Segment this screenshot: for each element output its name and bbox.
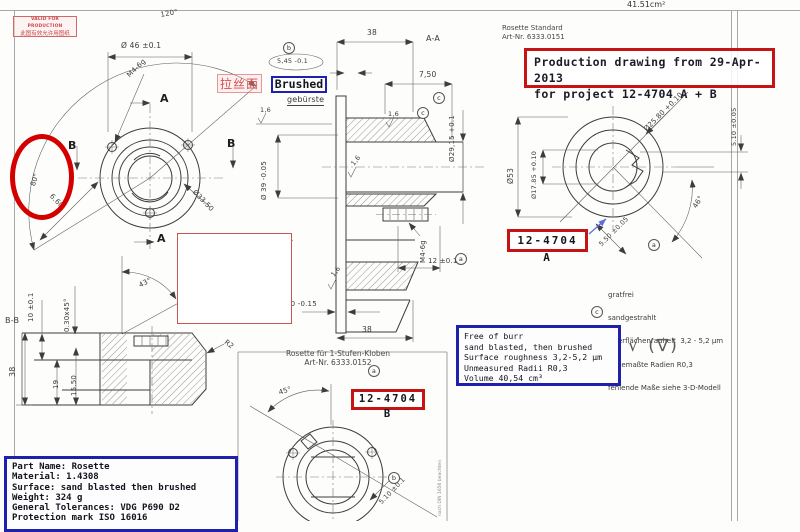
brushed-annotation-box: Brushed <box>271 76 327 93</box>
dimension-label: A-A <box>426 35 440 43</box>
sheet-area-label: 41.51cm² <box>627 0 665 9</box>
dimension-label: 38 <box>367 29 377 37</box>
title-b-artnr: Art-Nr. 6333.0152 <box>258 358 418 367</box>
part-info-line: Part Name: Rosette <box>12 462 230 472</box>
red-empty-rectangle <box>177 233 292 324</box>
part-info-line: Material: 1.4308 <box>12 472 230 482</box>
dimension-label: M4-6g <box>420 240 427 263</box>
surface-finish-icon: √ (∇) <box>628 336 679 356</box>
part-info-line: Protection mark ISO 16016 <box>12 513 230 523</box>
dimension-label: Ø29,15 +0.1 <box>449 115 456 162</box>
dimension-label: 120° <box>160 9 179 19</box>
dimension-label: 12 ±0.1 <box>428 258 458 265</box>
dimension-label: 5.50 ±0.05 <box>598 216 630 248</box>
brushed-label: Brushed <box>275 77 323 91</box>
part-info-line: Weight: 324 g <box>12 493 230 503</box>
english-note-line: Free of burr <box>464 331 613 342</box>
section-letter: B <box>227 138 236 149</box>
dimension-label: Ø53 <box>507 168 515 184</box>
english-note-line: Surface roughness 3,2-5,2 µm <box>464 352 613 363</box>
english-notes-box: Free of burr sand blasted, then brushed … <box>456 325 621 386</box>
dimension-label: 7,50 <box>419 71 437 79</box>
title-block-b: Rosette für 1-Stufen-Kloben Art-Nr. 6333… <box>258 349 418 367</box>
german-note-line: gratfrei <box>608 292 723 300</box>
dimension-label: 19 <box>53 380 60 389</box>
drawing-canvas: 120°Ø 46 ±0.1M4-6gAABB80°6.60Ø33.5043°B-… <box>0 0 800 521</box>
chinese-brushed-note: 拉丝面 <box>217 74 262 93</box>
dimension-label: 45° <box>278 386 293 397</box>
dimension-label: 5.10 ±0.05 <box>731 108 738 146</box>
production-note-line2: for project 12-4704 A + B <box>534 86 765 102</box>
dimension-label: 0.30x45° <box>64 298 71 332</box>
part-b-tag: 12-4704 B <box>351 389 425 410</box>
production-note-line1: Production drawing from 29-Apr-2013 <box>534 54 765 86</box>
section-letter: B <box>68 140 77 151</box>
dimension-label: Ø17.85 +0.10 <box>531 151 538 199</box>
english-note-line: sand blasted, then brushed <box>464 342 613 353</box>
dimension-label: R2 <box>223 339 235 350</box>
valid-for-production-stamp: VALID FOR PRODUCTION 此图有效允许用图纸 <box>13 16 77 37</box>
stamp-line2: 此图有效允许用图纸 <box>14 30 76 38</box>
stamp-line1: VALID FOR PRODUCTION <box>14 17 76 30</box>
part-info-line: General Tolerances: VDG P690 D2 <box>12 503 230 513</box>
dimension-label: 1,6 <box>388 111 399 118</box>
dimension-label: 1,6 <box>330 265 342 278</box>
datum-circle-label: a <box>648 239 660 251</box>
german-note-line: sandgestrahlt <box>608 315 723 323</box>
part-info-line: Surface: sand blasted then brushed <box>12 483 230 493</box>
section-letter: A <box>157 233 166 244</box>
datum-circle-label: b <box>388 472 400 484</box>
dimension-label: 15.50 <box>71 375 78 396</box>
dimension-label: Ø 46 ±0.1 <box>121 42 161 50</box>
english-note-line: Volume 40,54 cm³ <box>464 373 613 384</box>
title-b-name: Rosette für 1-Stufen-Kloben <box>258 349 418 358</box>
german-note-line: fehlende Maße siehe 3-D-Modell <box>608 385 723 393</box>
dimension-label: 38 <box>9 366 17 377</box>
dimension-label: gebürste <box>287 96 324 106</box>
section-letter: A <box>160 93 169 104</box>
dimension-label: 38 <box>362 326 372 334</box>
dimension-label: 1,6 <box>350 154 362 167</box>
datum-circle-label: c <box>417 107 429 119</box>
datum-circle-label: b <box>283 42 295 54</box>
title-a-artnr: Art-Nr. 6333.0151 <box>502 33 565 42</box>
dimension-label: Ø33.50 <box>191 189 215 213</box>
dimension-label: 10 ±0.1 <box>28 292 35 322</box>
english-note-line: Unmeasured Radii R0,3 <box>464 363 613 374</box>
red-highlight-ellipse <box>10 134 74 220</box>
dimension-label: B-B <box>5 317 19 325</box>
title-a-name: Rosette Standard <box>502 24 565 33</box>
production-drawing-note-box: Production drawing from 29-Apr-2013 for … <box>524 48 775 88</box>
datum-circle-label: c <box>433 92 445 104</box>
german-note-line: unbemaßte Radien R0,3 <box>608 362 723 370</box>
datum-circle-label: c <box>591 306 603 318</box>
dimension-label: 46° <box>692 195 705 210</box>
sheet-edge-note: nach DIN 1656 beachten <box>438 460 443 516</box>
title-block-a: Rosette Standard Art-Nr. 6333.0151 <box>502 24 565 42</box>
datum-circle-label: a <box>455 253 467 265</box>
dimension-label: 1,6 <box>260 107 271 114</box>
dimension-label: Ø 39 -0.05 <box>261 161 268 200</box>
dimension-label: M4-6g <box>126 58 147 79</box>
dimension-label: 5,45 -0.1 <box>277 58 308 65</box>
dimension-label: 43° <box>138 277 153 289</box>
part-a-tag: 12-4704 A <box>507 229 588 252</box>
